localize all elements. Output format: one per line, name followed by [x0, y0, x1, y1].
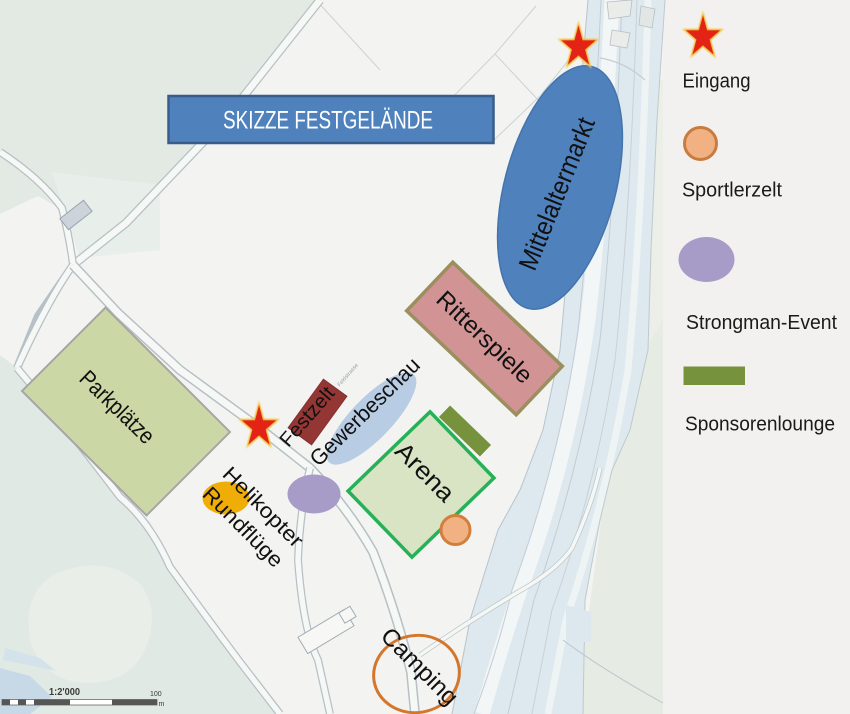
- svg-text:100: 100: [150, 691, 162, 698]
- svg-text:SKIZZE FESTGELÄNDE: SKIZZE FESTGELÄNDE: [223, 107, 433, 135]
- svg-text:Strongman-Event: Strongman-Event: [686, 311, 837, 334]
- svg-text:Sponsorenlounge: Sponsorenlounge: [685, 413, 835, 436]
- svg-text:1:2'000: 1:2'000: [49, 686, 80, 698]
- svg-text:m: m: [159, 701, 165, 708]
- svg-text:Sportlerzelt: Sportlerzelt: [682, 179, 782, 202]
- svg-text:Eingang: Eingang: [683, 70, 751, 93]
